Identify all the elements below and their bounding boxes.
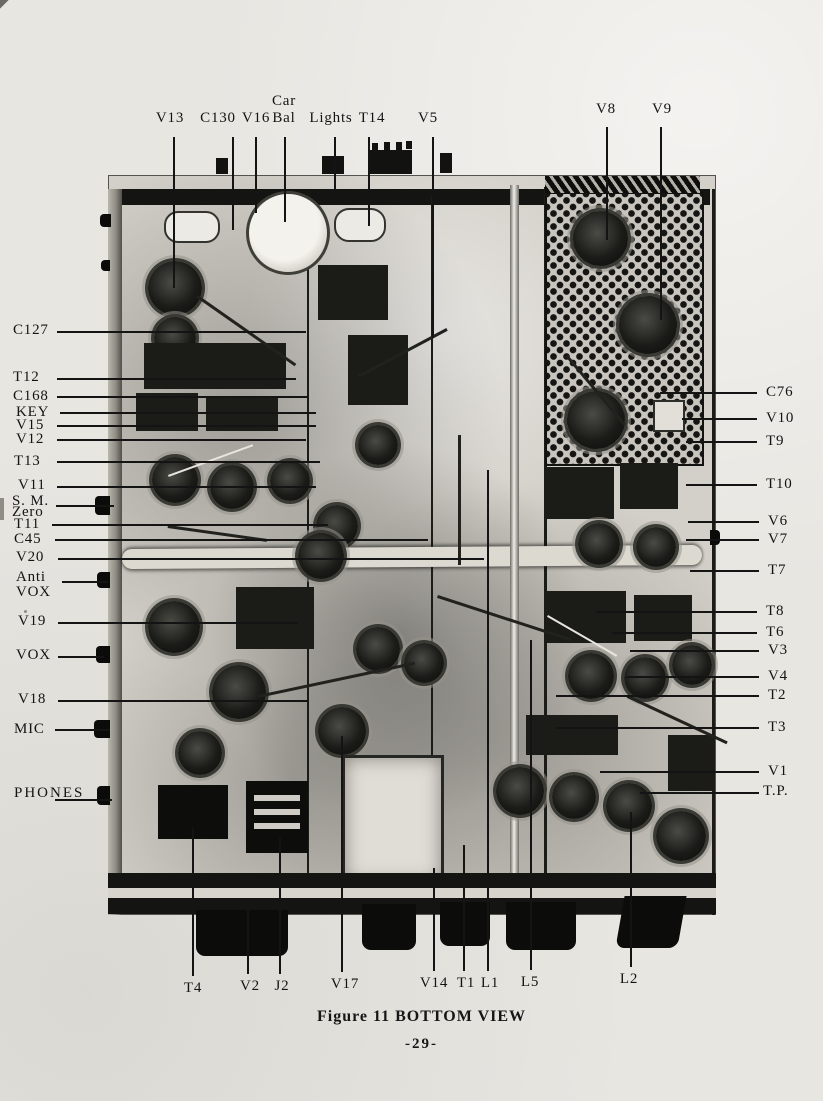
vox-knob [96,646,110,663]
callout-label-c76: C76 [766,384,793,400]
callout-label-vox: VOX [16,647,51,663]
capacitor-c76 [653,400,685,432]
chassis-bottom-rail [108,873,716,888]
manual-page: V13C130V16Car BalLightsT14V5V8V9C127T12C… [0,0,823,1101]
terminal-pin [384,142,390,150]
chassis-foot [440,902,490,946]
leader-line-c127 [57,331,306,333]
chassis-left-wall [108,189,122,915]
leader-line-v4 [626,676,759,678]
callout-label-v20: V20 [16,549,44,565]
leader-line-v9 [660,127,662,320]
tube-socket [606,783,652,829]
tube-socket-v3 [568,653,614,699]
leader-line-t12 [57,378,296,380]
tube-socket-v19 [148,601,200,653]
callout-label-v18: V18 [18,691,46,707]
perforated-panel-hatch [545,176,700,193]
tube-socket [496,767,544,815]
terminal-stripe [254,795,300,801]
chassis-foot [362,904,416,950]
tube-socket-v8 [573,211,628,266]
callout-label-v19: V19 [18,613,46,629]
callout-label-v12: V12 [16,431,44,447]
car-bal-capacitor [246,191,330,275]
leader-line-v3 [630,650,759,652]
leader-line-c130 [232,137,234,230]
terminal-pill [334,208,386,242]
terminal-pin [372,143,378,151]
scan-corner-mark [0,0,14,14]
tube-socket-v9 [619,296,677,354]
leader-line-t14 [368,137,370,226]
leader-line-v5 [432,137,434,338]
leader-line-v10 [682,418,757,420]
leader-line-t3 [556,727,759,729]
leader-line-l5 [530,640,532,970]
anti-vox-knob [97,572,110,588]
leader-line-t4 [192,828,194,976]
leader-line-key [60,412,316,414]
figure-caption: Figure 11 BOTTOM VIEW [10,1008,823,1026]
callout-label-v4: V4 [768,668,788,684]
callout-label-t9: T9 [766,433,784,449]
callout-label-l5: L5 [521,974,539,990]
component-block [668,735,712,791]
connector-j2 [246,781,308,853]
leader-line-t2 [556,695,759,697]
terminal-stripe [254,823,300,829]
tube-socket-v4 [624,657,666,699]
leader-line-c76 [660,392,757,394]
leader-line-v15 [57,425,316,427]
side-screw [101,260,110,271]
callout-label-c168: C168 [13,388,49,404]
callout-label-v9: V9 [652,101,672,117]
callout-label-tp: T.P. [763,783,788,799]
leader-line-t6 [612,632,757,634]
side-screw [710,530,720,545]
chassis-photo [108,175,716,915]
leader-line-t13 [57,461,320,463]
component-block [544,467,614,519]
leader-line-v1 [600,771,759,773]
terminal-pin [396,142,402,150]
component-block [348,335,408,405]
chassis-foot [506,902,576,950]
callout-label-v7: V7 [768,531,788,547]
callout-label-l2: L2 [620,971,638,987]
callout-label-phones: PHONES [14,785,84,801]
callout-label-t2: T2 [768,687,786,703]
callout-label-v13: V13 [156,110,184,126]
callout-label-t11: T11 [14,516,40,532]
leader-line-t11 [52,524,328,526]
leader-line-v14 [433,868,435,971]
leader-line-l2 [630,812,632,967]
tube-socket [270,461,310,501]
leader-line-vox [58,656,104,658]
terminal-strip [368,150,412,174]
callout-label-v16: V16 [242,110,270,126]
callout-label-v1: V1 [768,763,788,779]
callout-label-t12: T12 [13,369,40,385]
chassis-foot [615,896,686,948]
callout-label-v8: V8 [596,101,616,117]
tube-socket [356,627,400,671]
chassis-foot [196,910,288,956]
callout-label-c130: C130 [200,110,236,126]
tube-socket [152,457,198,503]
callout-label-t13: T13 [14,453,41,469]
leader-line-t8 [596,611,757,613]
leader-line-v17 [341,736,343,972]
leader-line-v6 [688,521,759,523]
top-connector [322,156,344,174]
callout-label-v3: V3 [768,642,788,658]
callout-label-v14: V14 [420,975,448,991]
leader-line-v20 [58,558,484,560]
callout-label-t3: T3 [768,719,786,735]
chassis-right-edge [712,189,715,915]
tube-socket [578,523,620,565]
callout-label-car-bal: Car Bal [272,93,296,127]
callout-label-v6: V6 [768,513,788,529]
callout-label-t1: T1 [457,975,475,991]
leader-line-anti-vox [62,581,108,583]
callout-label-v5: V5 [418,110,438,126]
leader-line-v7 [686,539,759,541]
tube-socket-v1 [552,775,596,819]
callout-label-c127: C127 [13,322,49,338]
leader-line-sm-zero [56,505,114,507]
callout-label-v17: V17 [331,976,359,992]
component-block [620,463,678,509]
wire [458,435,461,565]
leader-line-mic [55,729,110,731]
leader-line-v18 [58,700,308,702]
top-screw [216,158,228,174]
phones-jack [97,786,110,805]
leader-line-lights [334,137,336,203]
relay-block [236,587,314,649]
transformer-t12 [144,343,286,389]
leader-line-t1 [463,845,465,971]
leader-line-car-bal [284,137,286,222]
leader-line-v16 [255,137,257,213]
coil-l2 [656,811,706,861]
callout-label-t6: T6 [766,624,784,640]
leader-line-c168 [57,396,308,398]
component-block [526,715,618,755]
top-component [440,153,452,173]
tube-socket-v10 [567,391,625,449]
leader-line-t10 [686,484,757,486]
callout-label-v10: V10 [766,410,794,426]
callout-label-mic: MIC [14,721,45,737]
tube-socket-v13 [148,261,202,315]
callout-label-t14: T14 [359,110,386,126]
scan-edge-smudge [0,498,4,520]
leader-line-v8 [606,127,608,240]
callout-label-anti-vox: Anti VOX [16,570,51,600]
wire [258,662,415,698]
transformer-cover [342,755,444,885]
leader-line-c45 [55,539,428,541]
callout-label-v11: V11 [18,477,46,493]
callout-label-sm-zero: S. M. Zero [12,496,49,518]
component-block [318,265,388,320]
callout-label-t10: T10 [766,476,793,492]
side-screw [100,214,111,227]
callout-label-l1: L1 [481,975,499,991]
callout-label-t7: T7 [768,562,786,578]
leader-line-v11 [57,486,316,488]
tube-socket [358,425,398,465]
tube-socket [178,731,222,775]
leader-line-v2 [247,898,249,974]
terminal-pin [406,141,412,149]
callout-label-t4: T4 [184,980,202,996]
terminal-stripe [254,809,300,815]
tube-socket [636,527,676,567]
leader-line-t9 [686,441,757,443]
leader-line-v13 [173,137,175,288]
leader-line-l1 [487,470,489,971]
leader-line-t7 [690,570,759,572]
callout-label-j2: J2 [275,978,290,994]
leader-line-tp [640,792,759,794]
callout-label-t8: T8 [766,603,784,619]
tube-socket-v18 [212,665,266,719]
leader-line-v12 [57,439,306,441]
leader-line-j2 [279,838,281,974]
leader-line-v19 [58,622,298,624]
callout-label-lights: Lights [309,110,352,126]
callout-label-c45: C45 [14,531,41,547]
transformer-t6 [634,595,692,641]
page-number: -29- [10,1036,823,1053]
callout-label-v2: V2 [240,978,260,994]
